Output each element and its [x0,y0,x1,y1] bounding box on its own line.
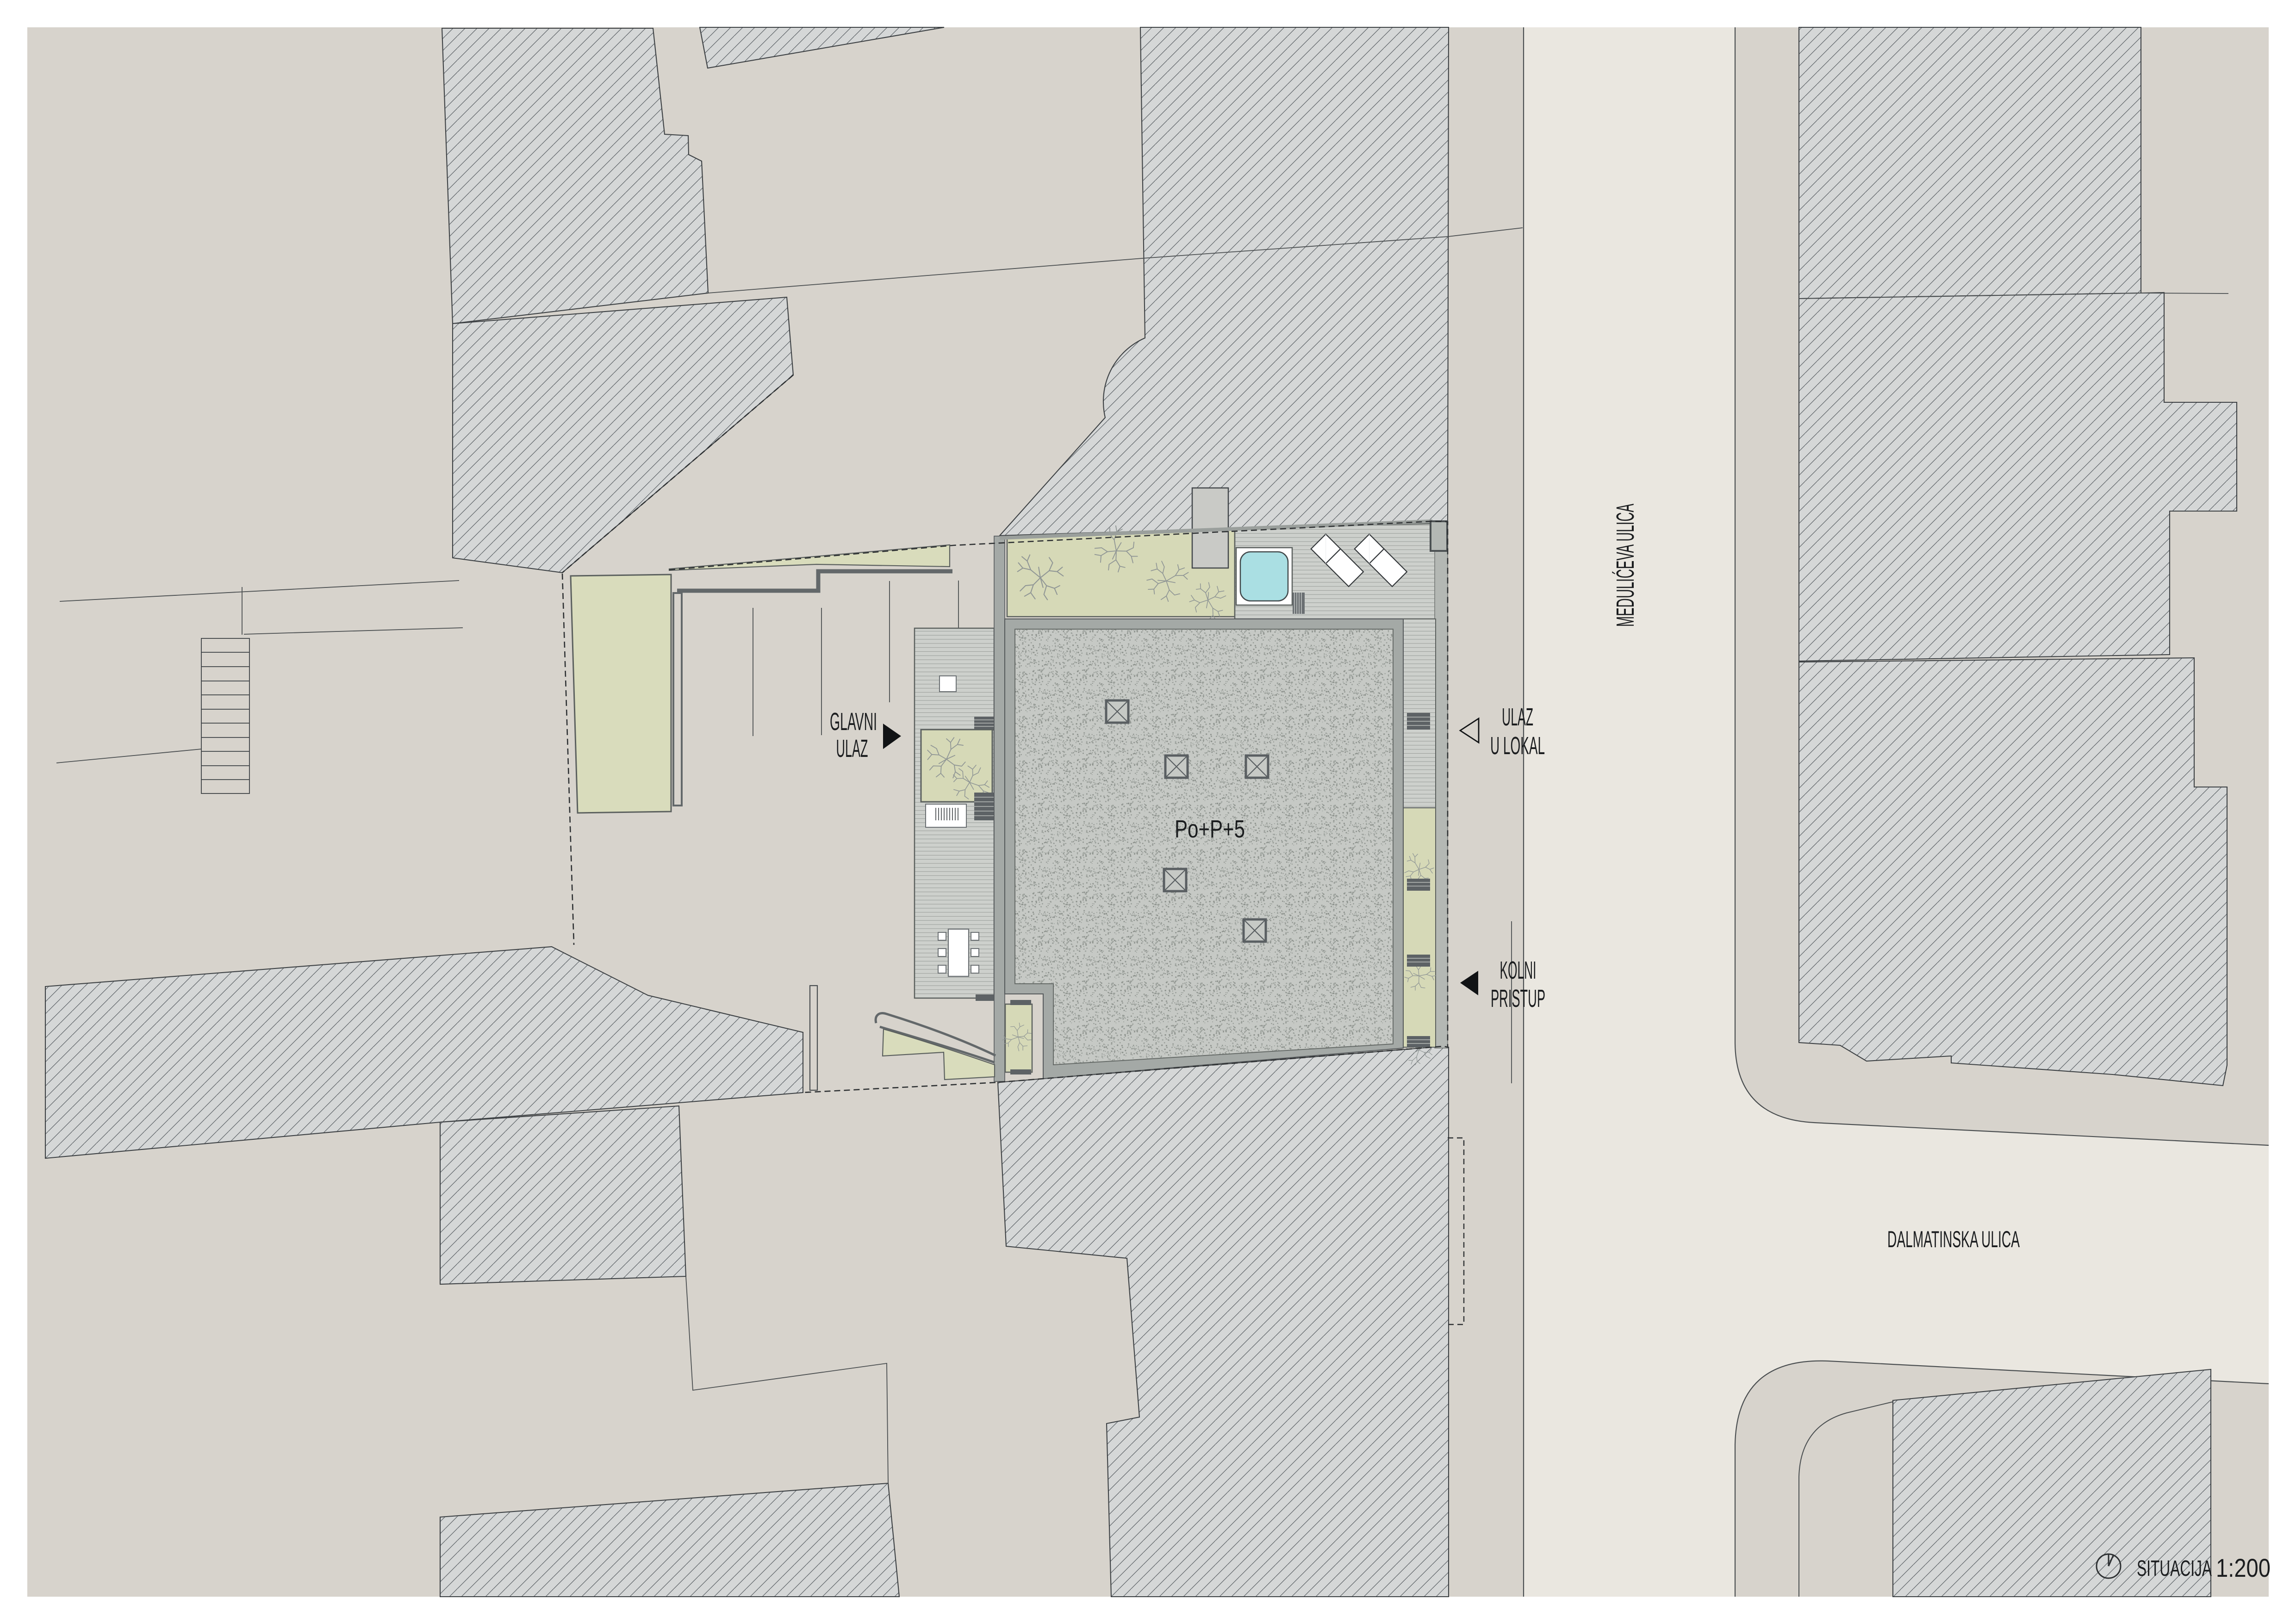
svg-text:Po+P+5: Po+P+5 [1175,815,1245,843]
svg-text:1:200: 1:200 [2216,1553,2271,1582]
svg-text:PRISTUP: PRISTUP [1491,985,1545,1012]
svg-text:ULAZ: ULAZ [1502,703,1533,731]
svg-text:U LOKAL: U LOKAL [1490,732,1545,760]
svg-text:MEDULIĆEVA ULICA: MEDULIĆEVA ULICA [1612,504,1639,627]
svg-text:SITUACIJA: SITUACIJA [2137,1556,2212,1581]
svg-text:ULAZ: ULAZ [836,735,868,762]
svg-text:KOLNI: KOLNI [1500,956,1537,984]
svg-text:GLAVNI: GLAVNI [830,708,877,736]
svg-text:DALMATINSKA ULICA: DALMATINSKA ULICA [1887,1226,2020,1252]
